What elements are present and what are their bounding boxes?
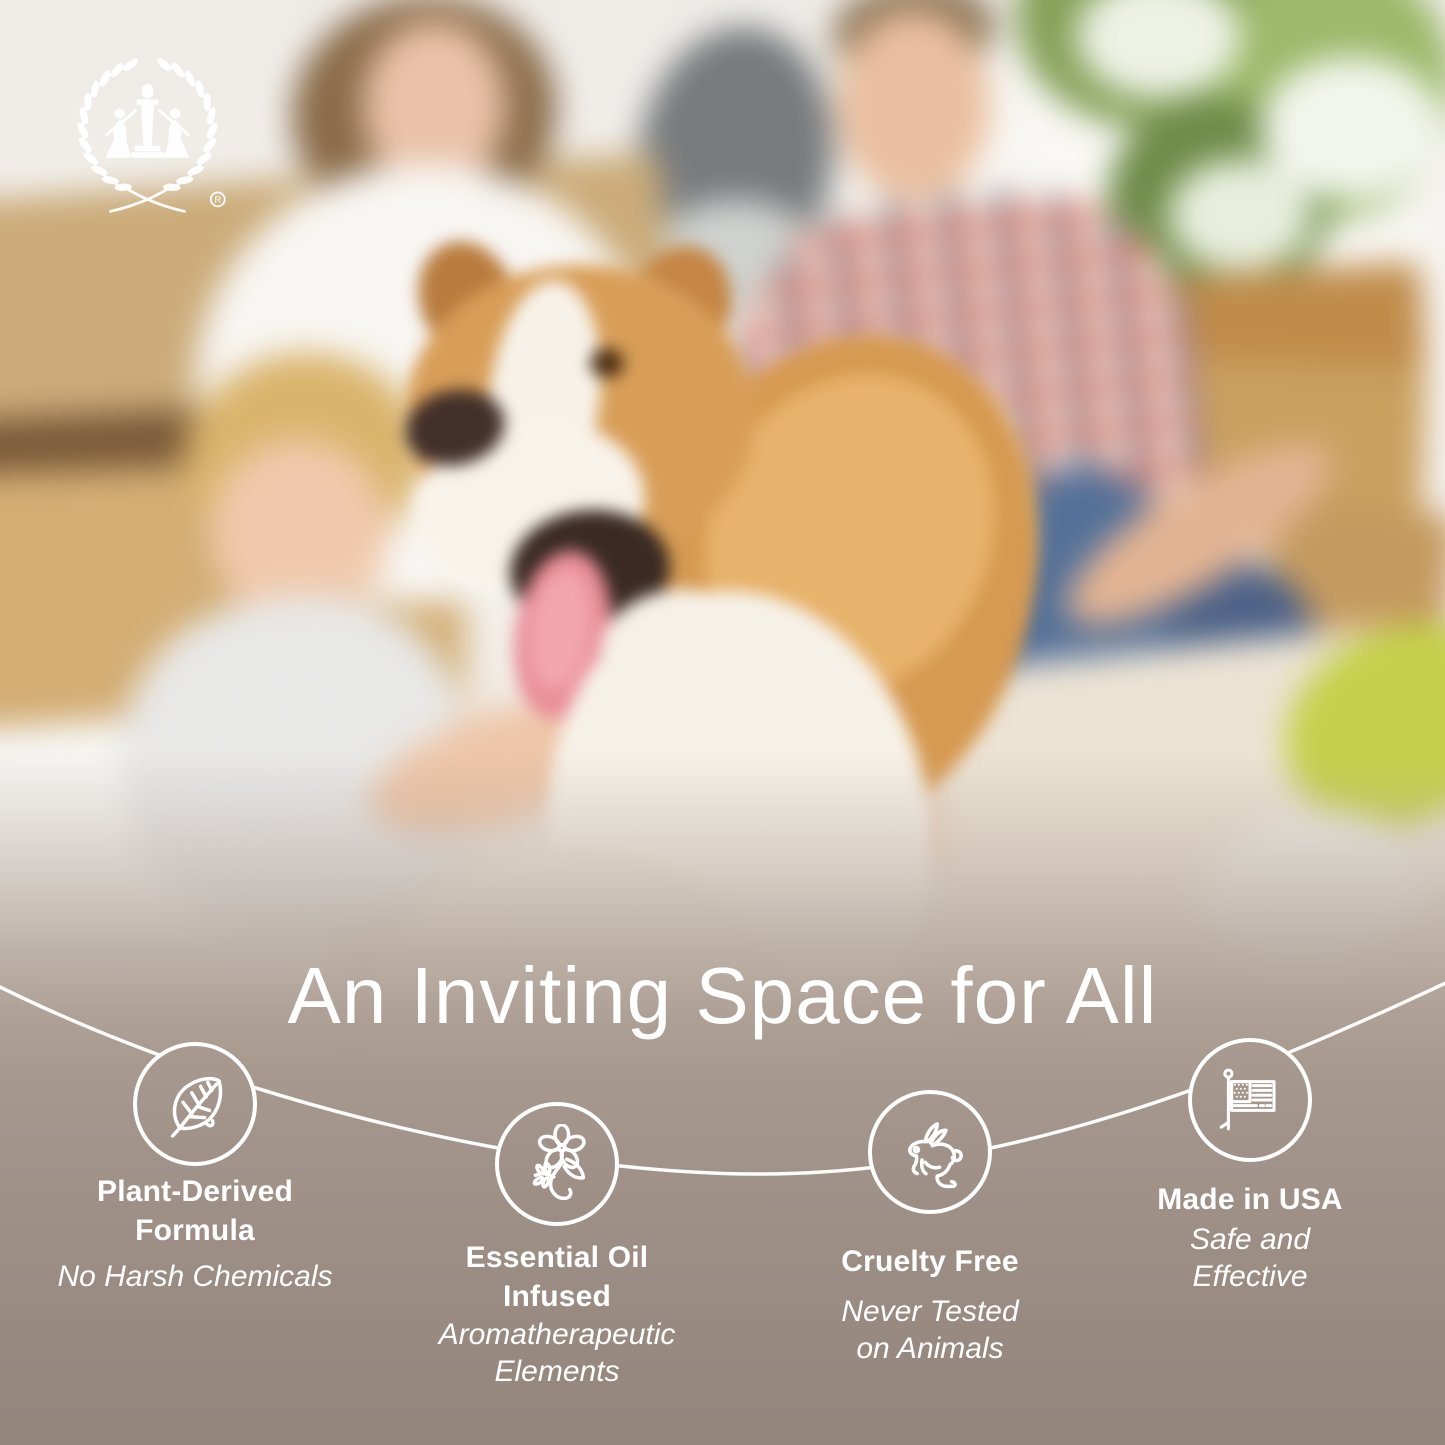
feature-circle-plant <box>133 1042 257 1166</box>
flower-icon <box>517 1124 597 1204</box>
feature-plant-derived: Plant-Derived Formula No Harsh Chemicals <box>25 1172 365 1295</box>
feature-circle-cruelty-free <box>868 1090 992 1214</box>
feature-essential-oil: Essential Oil Infused Aromatherapeutic E… <box>387 1238 727 1390</box>
feature-circle-usa <box>1188 1038 1312 1162</box>
product-infographic: ® R An Inviting Space for All <box>0 0 1445 1445</box>
feature-cruelty-free: Cruelty Free Never Tested on Animals <box>760 1242 1100 1367</box>
feature-title: Made in USA <box>1080 1180 1420 1219</box>
feature-title: Cruelty Free <box>760 1242 1100 1281</box>
feature-subtitle: No Harsh Chemicals <box>25 1258 365 1295</box>
feature-subtitle: Safe and Effective <box>1080 1221 1420 1295</box>
feature-subtitle: Aromatherapeutic Elements <box>387 1316 727 1390</box>
feature-made-in-usa: Made in USA Safe and Effective <box>1080 1180 1420 1295</box>
flag-icon <box>1210 1060 1290 1140</box>
feature-subtitle: Never Tested on Animals <box>760 1293 1100 1367</box>
feature-circle-oil <box>495 1102 619 1226</box>
leaf-icon <box>155 1064 235 1144</box>
feature-title: Essential Oil Infused <box>387 1238 727 1316</box>
feature-title: Plant-Derived Formula <box>25 1172 365 1250</box>
rabbit-icon <box>890 1112 970 1192</box>
